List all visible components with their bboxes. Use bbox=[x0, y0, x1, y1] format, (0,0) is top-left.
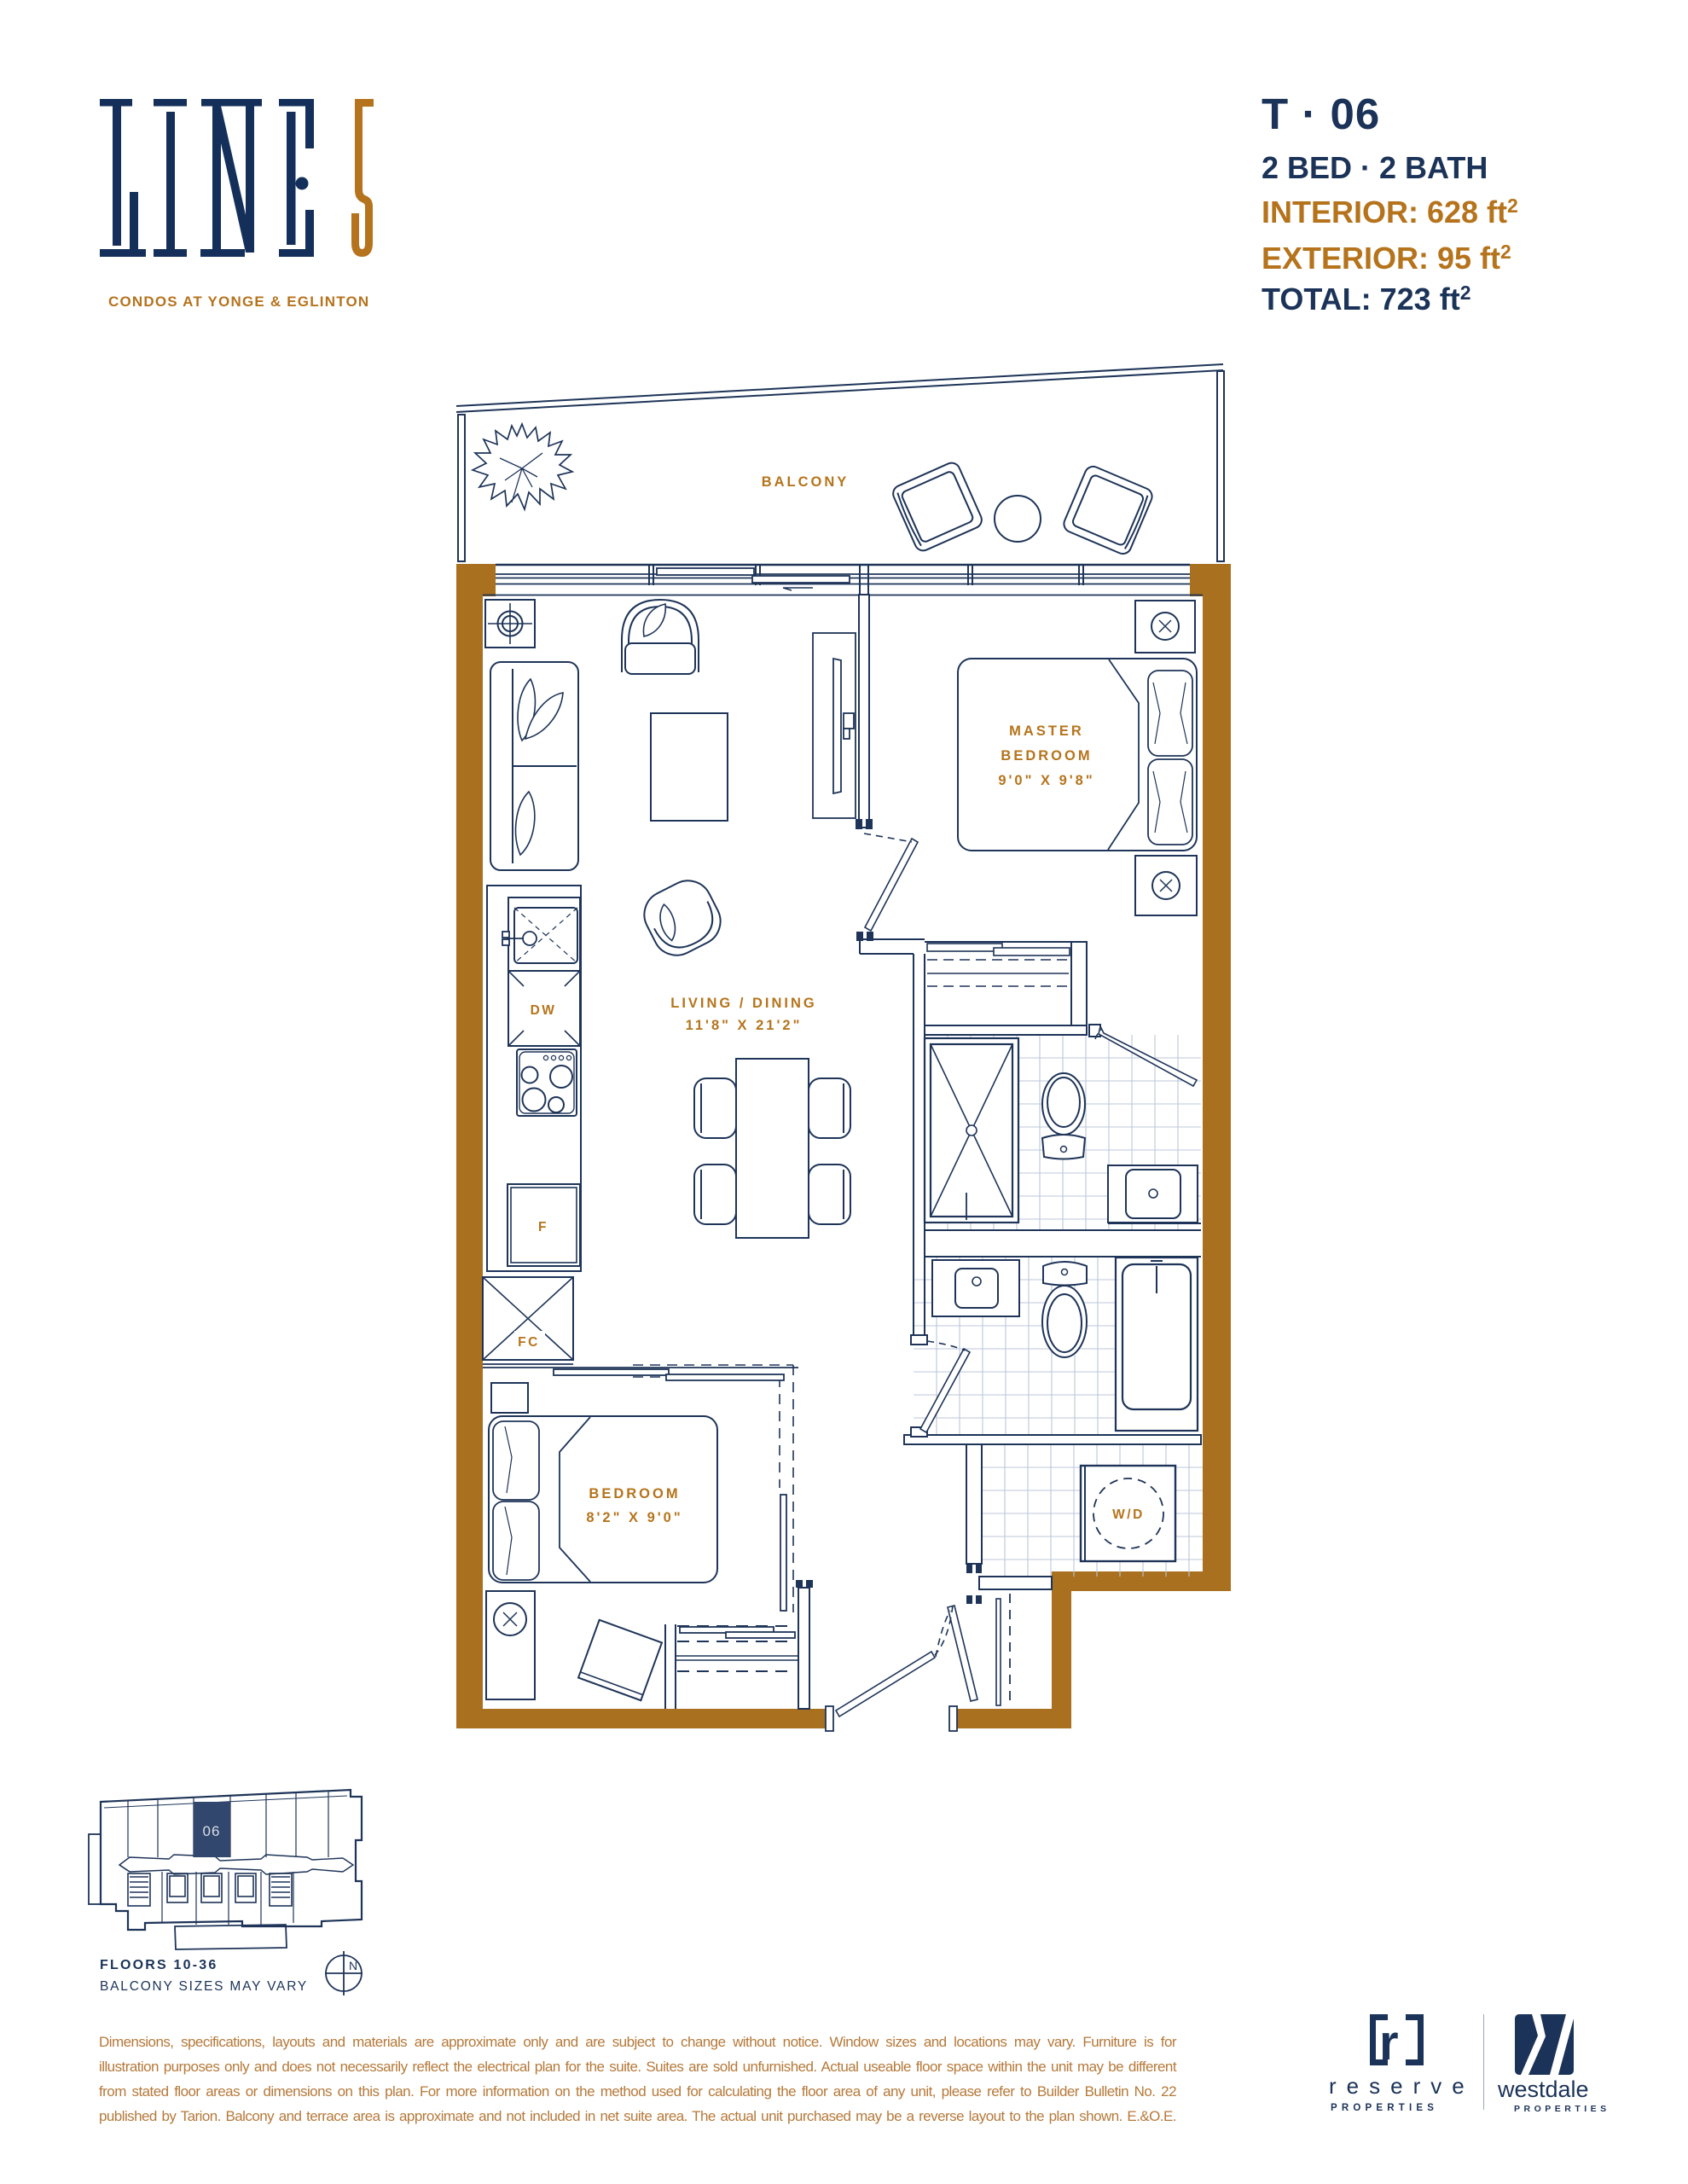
svg-text:BALCONY: BALCONY bbox=[762, 474, 850, 490]
svg-text:reserve: reserve bbox=[1329, 2073, 1475, 2099]
svg-text:PROPERTIES: PROPERTIES bbox=[1331, 2103, 1438, 2113]
svg-text:FC: FC bbox=[518, 1335, 540, 1350]
svg-text:PROPERTIES: PROPERTIES bbox=[1514, 2104, 1610, 2114]
svg-text:r: r bbox=[1379, 2015, 1399, 2071]
svg-text:9'0" X 9'8": 9'0" X 9'8" bbox=[998, 773, 1094, 788]
svg-text:11'8" X 21'2": 11'8" X 21'2" bbox=[686, 1018, 803, 1033]
svg-text:MASTER: MASTER bbox=[1009, 723, 1084, 739]
svg-text:F: F bbox=[538, 1220, 548, 1234]
svg-text:DW: DW bbox=[531, 1003, 557, 1018]
svg-text:westdale: westdale bbox=[1498, 2077, 1589, 2102]
svg-text:CONDOS AT YONGE & EGLINTON: CONDOS AT YONGE & EGLINTON bbox=[108, 293, 369, 310]
svg-text:N: N bbox=[349, 1959, 357, 1972]
svg-text:BEDROOM: BEDROOM bbox=[1001, 748, 1092, 764]
svg-text:LIVING / DINING: LIVING / DINING bbox=[670, 996, 817, 1011]
svg-text:06: 06 bbox=[203, 1823, 221, 1839]
svg-text:8'2" X 9'0": 8'2" X 9'0" bbox=[586, 1510, 682, 1525]
svg-text:BEDROOM: BEDROOM bbox=[589, 1486, 680, 1501]
svg-text:W/D: W/D bbox=[1112, 1507, 1145, 1522]
